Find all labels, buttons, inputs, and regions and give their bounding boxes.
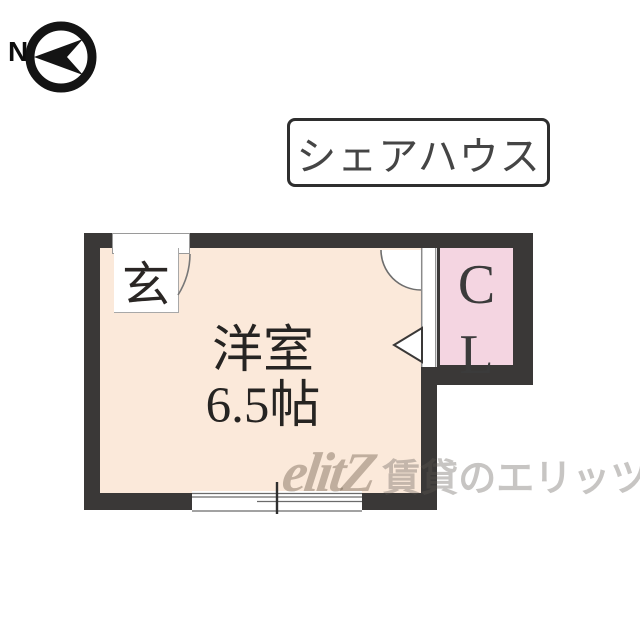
closet-door-direction-triangle <box>394 328 422 362</box>
room-size: 6.5帖 <box>134 379 392 434</box>
closet-letter-c: C <box>440 250 513 320</box>
room-name: 洋室 <box>134 324 392 379</box>
closet-letter-l: L <box>440 320 513 390</box>
entrance-door-swing-arc <box>178 254 190 295</box>
floorplan-canvas: N シェアハウス 玄 <box>0 0 640 640</box>
closet-label: C L <box>440 250 513 390</box>
room-label: 洋室 6.5帖 <box>134 324 392 434</box>
plan-linework <box>0 0 640 640</box>
